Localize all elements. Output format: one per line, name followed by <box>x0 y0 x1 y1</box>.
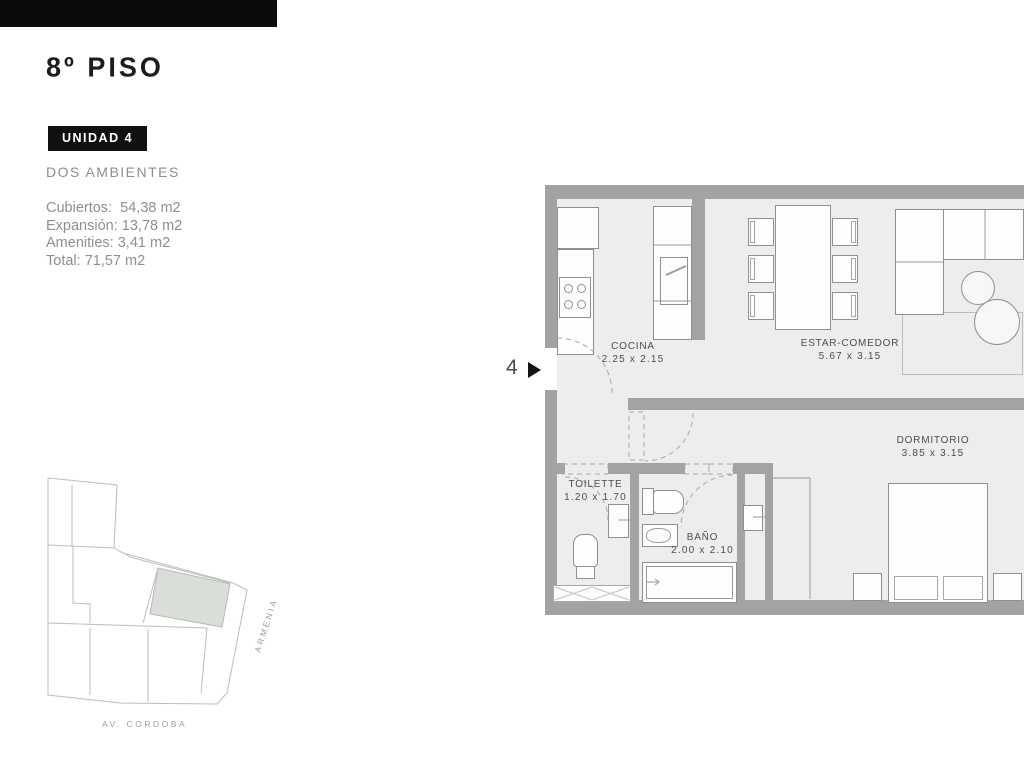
highlighted-parcel <box>150 568 230 627</box>
room-dims: 5.67 x 3.15 <box>790 351 910 362</box>
site-map: ARMENIA AV. CORDOBA <box>22 455 292 745</box>
sofa-body <box>943 209 1024 260</box>
room-dims: 3.85 x 3.15 <box>883 448 983 459</box>
room-name: ESTAR-COMEDOR <box>790 338 910 349</box>
area-row-cubiertos: Cubiertos: 54,38 m2 <box>46 200 182 218</box>
fridge <box>557 207 599 249</box>
area-label: Total: <box>46 253 81 269</box>
dining-chair <box>832 218 858 246</box>
nightstand <box>993 573 1022 601</box>
pillow <box>943 576 983 600</box>
bath-closet-cabinet <box>743 505 763 531</box>
bano-door-leaf <box>685 464 709 474</box>
dining-chair <box>748 255 774 283</box>
room-dims: 2.25 x 2.15 <box>583 354 683 365</box>
dining-chair <box>748 218 774 246</box>
room-name: BAÑO <box>655 532 750 543</box>
vent-shaft <box>553 585 631 602</box>
room-name: DORMITORIO <box>883 435 983 446</box>
toilette-door-leaf <box>563 464 608 474</box>
area-row-expansion: Expansión: 13,78 m2 <box>46 218 182 236</box>
area-label: Amenities: <box>46 235 114 251</box>
unit-subtitle: DOS AMBIENTES <box>46 164 180 180</box>
pillow <box>894 576 938 600</box>
kitchen-sink <box>660 257 688 305</box>
area-value: 3,41 m2 <box>118 235 170 251</box>
stove <box>559 277 591 318</box>
unit-badge: UNIDAD 4 <box>48 126 147 151</box>
bedroom-closet-front <box>773 478 810 599</box>
area-value: 13,78 m2 <box>122 218 182 234</box>
wall-top <box>545 185 1024 199</box>
area-label: Cubiertos: <box>46 200 112 216</box>
room-label-toilette: TOILETTE 1.20 x 1.70 <box>548 479 643 503</box>
wall-bath-top-b <box>608 463 640 474</box>
room-dims: 2.00 x 2.10 <box>655 545 750 556</box>
wall-bath-top-c <box>640 463 685 474</box>
burner-icon <box>564 284 573 293</box>
bano-door-arc <box>681 475 733 527</box>
bathtub-inner <box>646 566 733 599</box>
dining-chair <box>832 292 858 320</box>
room-dims: 1.20 x 1.70 <box>548 492 643 503</box>
burner-icon <box>577 284 586 293</box>
dining-chair <box>832 255 858 283</box>
wall-living-bedroom <box>628 398 1024 410</box>
area-label: Expansión: <box>46 218 118 234</box>
unit-marker: 4 <box>506 356 518 380</box>
area-row-amenities: Amenities: 3,41 m2 <box>46 235 182 253</box>
sofa-chaise <box>895 209 944 315</box>
vanity <box>608 504 629 538</box>
dining-table <box>775 205 831 330</box>
burner-icon <box>577 300 586 309</box>
room-name: COCINA <box>583 341 683 352</box>
street-label-cordoba: AV. CORDOBA <box>102 719 187 729</box>
room-label-bano: BAÑO 2.00 x 2.10 <box>655 532 750 556</box>
entrance-arrow-icon <box>528 362 541 378</box>
room-name: TOILETTE <box>548 479 643 490</box>
area-value: 54,38 m2 <box>120 200 180 216</box>
wall-kitchen-divider <box>692 199 705 340</box>
room-label-estar: ESTAR-COMEDOR 5.67 x 3.15 <box>790 338 910 362</box>
area-value: 71,57 m2 <box>85 253 145 269</box>
wall-bath-top-d <box>733 463 773 474</box>
room-label-cocina: COCINA 2.25 x 2.15 <box>583 341 683 365</box>
side-table-large <box>974 299 1020 345</box>
wall-bath-top-a <box>557 463 565 474</box>
hall-door-leaf <box>629 412 644 460</box>
floorplan-page: { "header": { "title": "8º PISO", "unit_… <box>0 0 1024 768</box>
entrance-opening <box>545 348 557 390</box>
floor-plan: COCINA 2.25 x 2.15 ESTAR-COMEDOR 5.67 x … <box>545 185 1024 615</box>
area-row-total: Total: 71,57 m2 <box>46 253 182 271</box>
toilet <box>573 534 598 567</box>
dining-chair <box>748 292 774 320</box>
toilet-tank <box>576 566 595 579</box>
hall-door-arc <box>645 413 693 461</box>
room-label-dormitorio: DORMITORIO 3.85 x 3.15 <box>883 435 983 459</box>
bathtub <box>642 562 737 603</box>
bano-door-leaf <box>709 464 733 474</box>
page-title: 8º PISO <box>46 51 164 83</box>
wall-left-upper <box>545 185 557 348</box>
toilet <box>653 490 684 514</box>
wall-corridor <box>765 474 773 600</box>
nightstand <box>853 573 882 601</box>
street-label-armenia: ARMENIA <box>252 597 279 654</box>
area-summary: Cubiertos: 54,38 m2 Expansión: 13,78 m2 … <box>46 200 182 270</box>
burner-icon <box>564 300 573 309</box>
header-bar <box>0 0 277 27</box>
